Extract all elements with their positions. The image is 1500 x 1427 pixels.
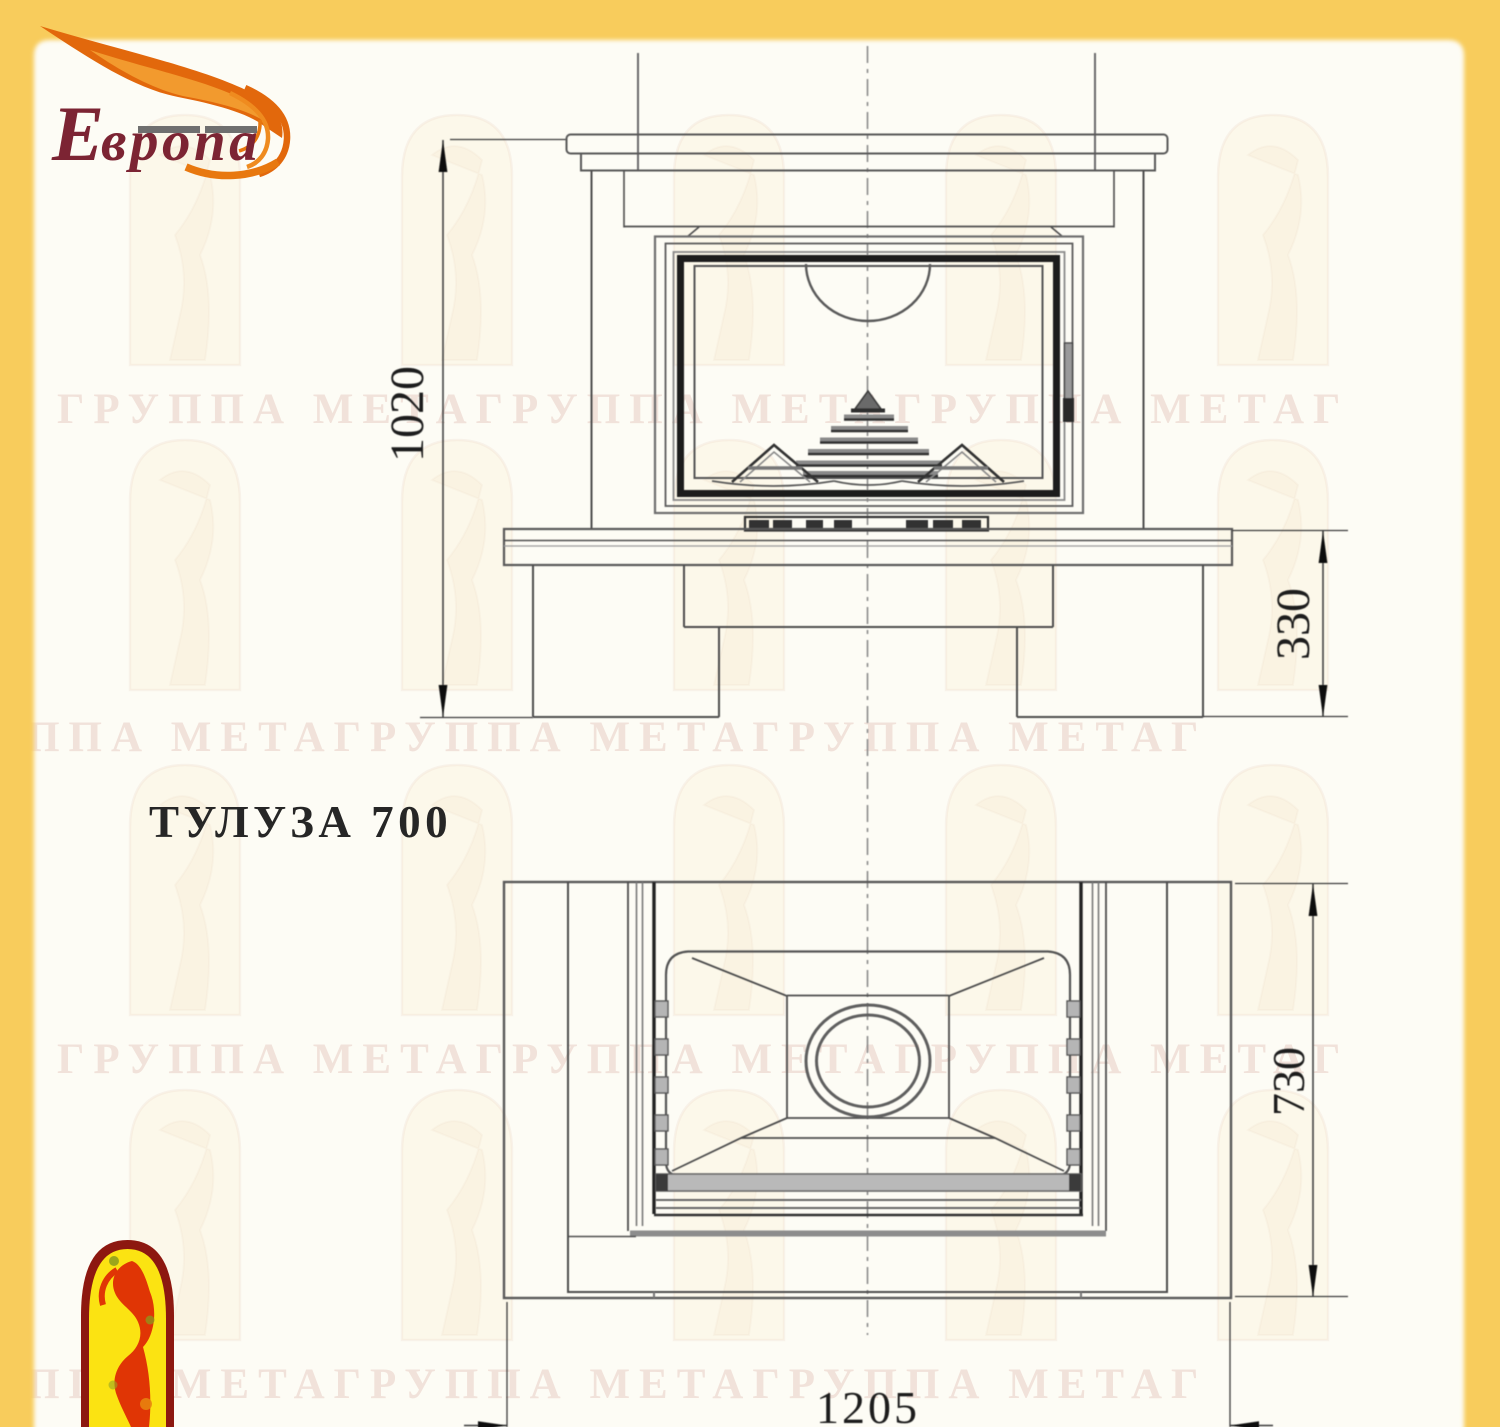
svg-text:730: 730 [1263, 1047, 1314, 1116]
svg-text:1205: 1205 [816, 1382, 920, 1427]
svg-text:Е: Е [51, 90, 104, 177]
svg-text:ГРУППА МЕТАГРУППА МЕТАГРУППА М: ГРУППА МЕТАГРУППА МЕТАГРУППА МЕТАГ [57, 1036, 1349, 1083]
svg-text:ГРУППА МЕТАГРУППА МЕТАГРУППА М: ГРУППА МЕТАГРУППА МЕТАГРУППА МЕТАГ [0, 714, 1207, 761]
svg-text:1020: 1020 [381, 366, 434, 462]
svg-text:ГРУППА МЕТАГРУППА МЕТАГРУППА М: ГРУППА МЕТАГРУППА МЕТАГРУППА МЕТАГ [57, 386, 1349, 433]
svg-text:вропа: вропа [101, 110, 261, 173]
svg-text:ТУЛУЗА 700: ТУЛУЗА 700 [149, 797, 452, 847]
svg-text:ГРУППА МЕТАГРУППА МЕТАГРУППА М: ГРУППА МЕТАГРУППА МЕТАГРУППА МЕТАГ [0, 1361, 1207, 1408]
svg-text:330: 330 [1267, 588, 1320, 660]
